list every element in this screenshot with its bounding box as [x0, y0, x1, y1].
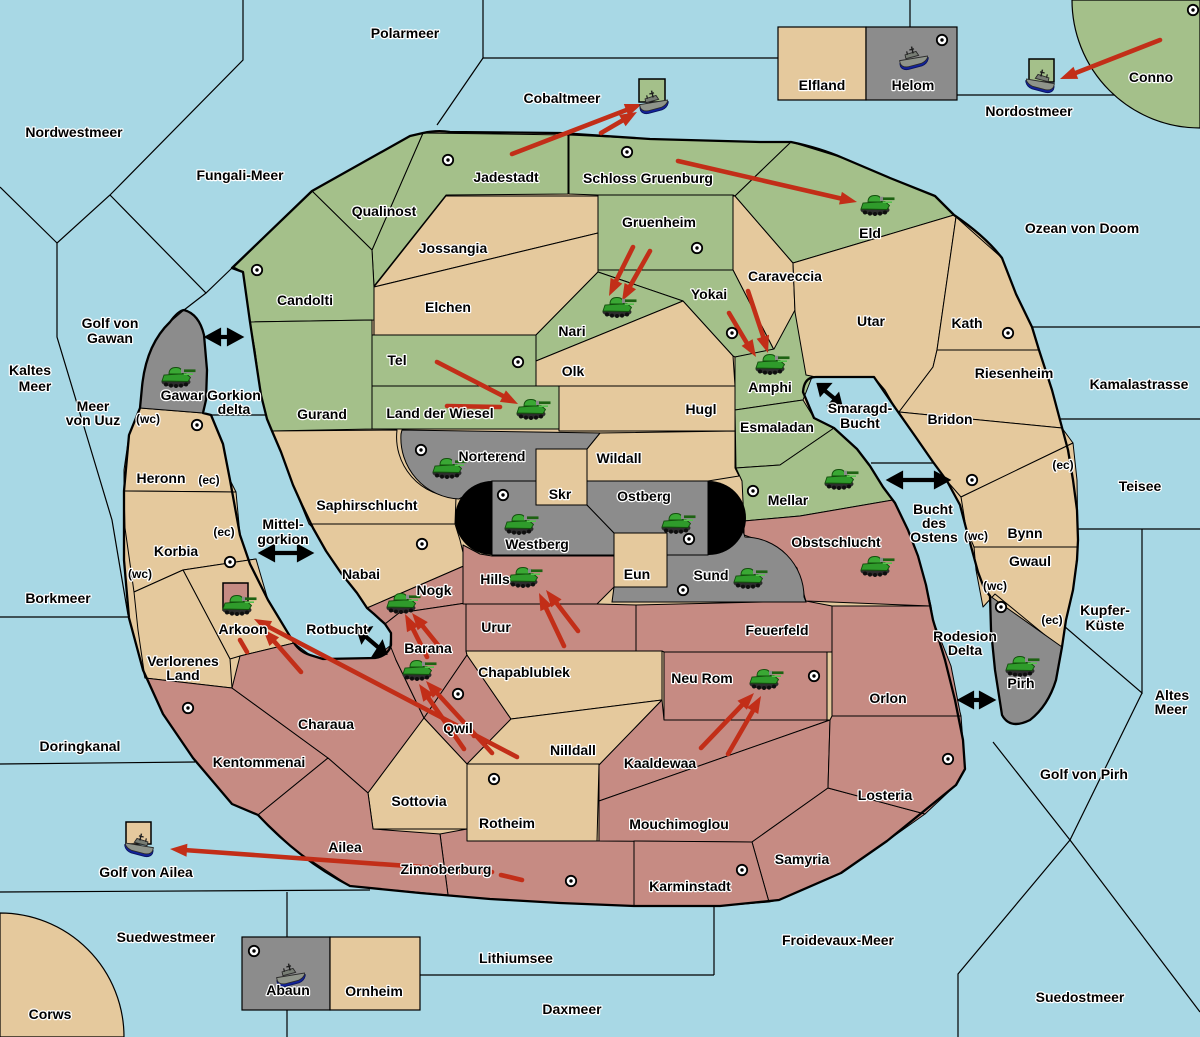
svg-text:Hugl: Hugl: [685, 401, 716, 417]
svg-text:Kaltes: Kaltes: [9, 362, 51, 378]
svg-text:Meer: Meer: [19, 378, 52, 394]
svg-text:Borkmeer: Borkmeer: [25, 590, 91, 606]
svg-text:Fungali-Meer: Fungali-Meer: [196, 167, 284, 183]
svg-text:Nordostmeer: Nordostmeer: [985, 103, 1073, 119]
svg-text:Yokai: Yokai: [691, 286, 727, 302]
svg-text:Ostens: Ostens: [910, 529, 958, 545]
svg-text:Qwil: Qwil: [443, 720, 473, 736]
svg-text:Kath: Kath: [951, 315, 982, 331]
svg-text:Smaragd-: Smaragd-: [828, 400, 893, 416]
svg-text:Kaaldewaa: Kaaldewaa: [624, 755, 697, 771]
svg-text:Nilldall: Nilldall: [550, 742, 596, 758]
svg-text:Abaun: Abaun: [266, 982, 310, 998]
svg-text:Chapablublek: Chapablublek: [478, 664, 570, 680]
svg-text:(wc): (wc): [128, 567, 152, 581]
svg-text:Gurand: Gurand: [297, 406, 347, 422]
svg-text:Mellar: Mellar: [768, 492, 809, 508]
svg-text:Cobaltmeer: Cobaltmeer: [523, 90, 601, 106]
svg-text:(wc): (wc): [983, 579, 1007, 593]
svg-text:Obstschlucht: Obstschlucht: [791, 534, 881, 550]
svg-text:Barana: Barana: [404, 640, 452, 656]
svg-text:Pirh: Pirh: [1007, 675, 1034, 691]
svg-text:Riesenheim: Riesenheim: [975, 365, 1054, 381]
svg-text:Heronn: Heronn: [137, 470, 186, 486]
svg-text:Westberg: Westberg: [505, 536, 569, 552]
svg-text:Rotbucht: Rotbucht: [306, 621, 368, 637]
svg-text:Wildall: Wildall: [597, 450, 642, 466]
svg-text:(ec): (ec): [1041, 613, 1062, 627]
svg-text:Daxmeer: Daxmeer: [542, 1001, 602, 1017]
svg-text:Feuerfeld: Feuerfeld: [745, 622, 808, 638]
svg-text:Gwaul: Gwaul: [1009, 553, 1051, 569]
svg-text:Schloss Gruenburg: Schloss Gruenburg: [583, 170, 713, 186]
svg-text:Olk: Olk: [562, 363, 585, 379]
svg-text:Kupfer-: Kupfer-: [1080, 602, 1130, 618]
svg-text:Neu Rom: Neu Rom: [671, 670, 732, 686]
svg-text:Mittel-: Mittel-: [262, 516, 304, 532]
svg-text:Skr: Skr: [549, 486, 572, 502]
svg-text:Land: Land: [166, 667, 199, 683]
svg-text:Lithiumsee: Lithiumsee: [479, 950, 553, 966]
svg-text:von Uuz: von Uuz: [66, 412, 120, 428]
svg-text:Zinnoberburg: Zinnoberburg: [401, 861, 492, 877]
svg-text:Bucht: Bucht: [840, 415, 880, 431]
svg-text:(ec): (ec): [198, 473, 219, 487]
svg-text:Gruenheim: Gruenheim: [622, 214, 696, 230]
svg-text:Bridon: Bridon: [927, 411, 972, 427]
svg-text:Conno: Conno: [1129, 69, 1173, 85]
svg-text:gorkion: gorkion: [257, 531, 308, 547]
svg-text:Meer: Meer: [1155, 701, 1188, 717]
svg-text:Delta: Delta: [948, 642, 982, 658]
svg-text:Caraveccia: Caraveccia: [748, 268, 822, 284]
svg-text:Eld: Eld: [859, 225, 881, 241]
svg-text:(wc): (wc): [964, 529, 988, 543]
svg-text:Helom: Helom: [892, 77, 935, 93]
svg-text:Qualinost: Qualinost: [352, 203, 417, 219]
svg-text:Nogk: Nogk: [417, 582, 452, 598]
svg-text:Norterend: Norterend: [459, 448, 526, 464]
svg-text:Sottovia: Sottovia: [391, 793, 446, 809]
svg-text:Ostberg: Ostberg: [617, 488, 671, 504]
svg-text:Nari: Nari: [558, 323, 585, 339]
svg-text:Samyria: Samyria: [775, 851, 830, 867]
svg-text:Corws: Corws: [29, 1006, 72, 1022]
svg-text:Nordwestmeer: Nordwestmeer: [25, 124, 123, 140]
svg-text:Gawan: Gawan: [87, 330, 133, 346]
svg-text:Esmaladan: Esmaladan: [740, 419, 814, 435]
svg-text:Golf von Pirh: Golf von Pirh: [1040, 766, 1128, 782]
svg-text:Hills: Hills: [480, 571, 510, 587]
svg-text:Elfland: Elfland: [799, 77, 846, 93]
svg-text:Karminstadt: Karminstadt: [649, 878, 731, 894]
svg-text:Rotheim: Rotheim: [479, 815, 535, 831]
svg-text:Candolti: Candolti: [277, 292, 333, 308]
svg-text:Eun: Eun: [624, 566, 650, 582]
svg-text:Charaua: Charaua: [298, 716, 354, 732]
svg-text:(ec): (ec): [213, 525, 234, 539]
svg-text:Gawar: Gawar: [161, 387, 204, 403]
svg-text:Amphi: Amphi: [748, 379, 792, 395]
svg-text:Doringkanal: Doringkanal: [40, 738, 121, 754]
svg-text:Teisee: Teisee: [1119, 478, 1162, 494]
svg-text:Jossangia: Jossangia: [419, 240, 488, 256]
svg-text:Orlon: Orlon: [869, 690, 906, 706]
svg-text:Land der Wiesel: Land der Wiesel: [386, 405, 493, 421]
svg-text:Saphirschlucht: Saphirschlucht: [316, 497, 417, 513]
svg-text:Korbia: Korbia: [154, 543, 199, 559]
svg-text:Froidevaux-Meer: Froidevaux-Meer: [782, 932, 895, 948]
svg-text:Sund: Sund: [694, 567, 729, 583]
svg-text:Polarmeer: Polarmeer: [371, 25, 440, 41]
svg-text:Kamalastrasse: Kamalastrasse: [1090, 376, 1189, 392]
svg-text:Ailea: Ailea: [328, 839, 362, 855]
svg-text:Nabai: Nabai: [342, 566, 380, 582]
svg-text:Jadestadt: Jadestadt: [473, 169, 539, 185]
svg-text:Suedwestmeer: Suedwestmeer: [117, 929, 216, 945]
svg-text:Küste: Küste: [1086, 617, 1125, 633]
svg-text:Ozean von Doom: Ozean von Doom: [1025, 220, 1139, 236]
svg-text:delta: delta: [218, 401, 251, 417]
svg-text:(wc): (wc): [136, 412, 160, 426]
svg-text:Urur: Urur: [481, 619, 511, 635]
svg-text:Kentommenai: Kentommenai: [213, 754, 306, 770]
svg-text:Losteria: Losteria: [858, 787, 913, 803]
svg-text:Golf von Ailea: Golf von Ailea: [99, 864, 193, 880]
svg-text:Elchen: Elchen: [425, 299, 471, 315]
svg-text:Utar: Utar: [857, 313, 886, 329]
svg-text:Suedostmeer: Suedostmeer: [1036, 989, 1125, 1005]
svg-text:Ornheim: Ornheim: [345, 983, 403, 999]
svg-text:Golf von: Golf von: [82, 315, 139, 331]
svg-text:(ec): (ec): [1052, 458, 1073, 472]
svg-text:Bynn: Bynn: [1008, 525, 1043, 541]
svg-text:Mouchimoglou: Mouchimoglou: [629, 816, 729, 832]
svg-text:Tel: Tel: [387, 352, 406, 368]
svg-text:Arkoon: Arkoon: [219, 621, 268, 637]
